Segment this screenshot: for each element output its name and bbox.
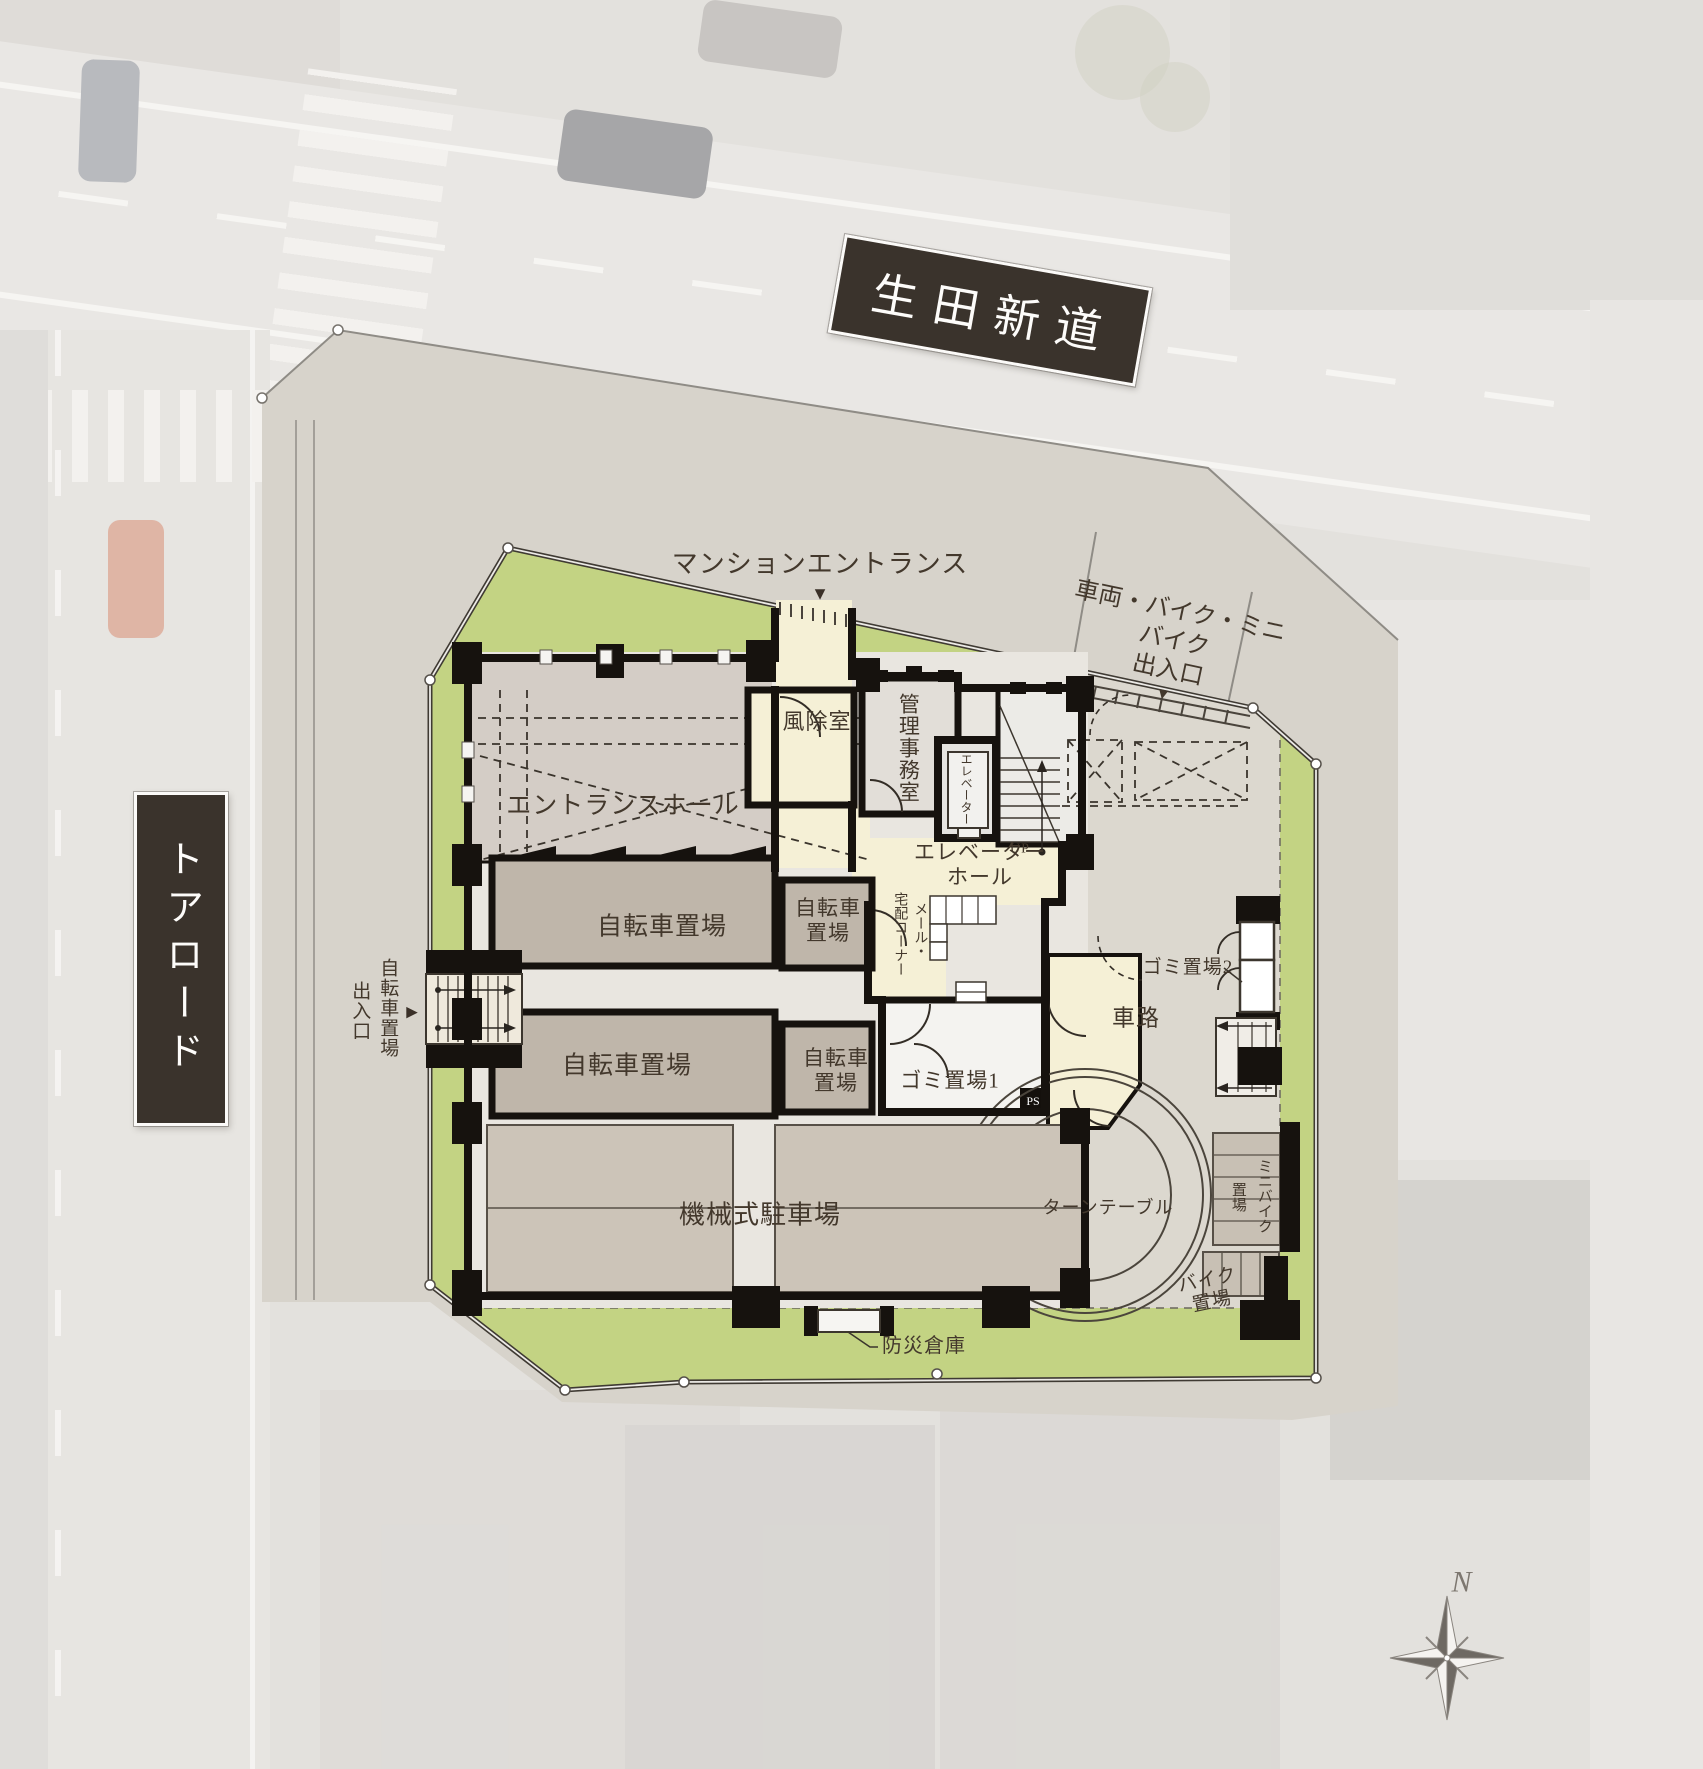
label-mail-line2: 宅配コーナー bbox=[891, 892, 908, 976]
site-plan-page: マンションエントランス ▼ 車両・バイク・ミニバイク 出入口 ▼ 自転車置場 出… bbox=[0, 0, 1703, 1769]
label-garbage-1: ゴミ置場1 bbox=[900, 1069, 1000, 1094]
label-ps: PS bbox=[1026, 1094, 1039, 1108]
entrance-marker-down-icon: ▼ bbox=[811, 584, 829, 605]
label-disaster-storage: 防災倉庫 bbox=[882, 1335, 966, 1359]
label-driveway: 車路 bbox=[1112, 1004, 1160, 1031]
label-elevator-hall: エレベーター ホール bbox=[914, 840, 1046, 890]
compass-north-label: N bbox=[1451, 1564, 1472, 1599]
label-mechanical-parking: 機械式駐車場 bbox=[679, 1201, 841, 1232]
label-bicycle-parking-4: 自転車置場 bbox=[802, 1046, 869, 1096]
windbreak-room bbox=[748, 690, 854, 805]
label-bicycle-entrance-line2: 出入口 bbox=[348, 981, 370, 1041]
label-management-office: 管理事務室 bbox=[896, 693, 921, 803]
elevator-hall-line1: エレベーター bbox=[914, 840, 1046, 865]
label-elevator: エレベーター bbox=[959, 753, 973, 825]
label-entrance-hall: エントランスホール bbox=[506, 791, 740, 821]
elevator-hall-line2: ホール bbox=[914, 865, 1046, 890]
label-bicycle-parking-1: 自転車置場 bbox=[597, 912, 727, 942]
label-turntable: ターンテーブル bbox=[1042, 1197, 1173, 1218]
label-bicycle-parking-3: 自転車置場 bbox=[562, 1051, 692, 1081]
bicycle-entrance-marker-right-icon: ▶ bbox=[406, 1003, 418, 1022]
road-sign-tor-text: トアロード bbox=[154, 839, 209, 1079]
label-bicycle-entrance-line1: 自転車置場 bbox=[376, 958, 398, 1058]
bike-ramp bbox=[1216, 1018, 1282, 1096]
road-sign-tor-road: トアロード bbox=[134, 792, 228, 1126]
label-mansion-entrance: マンションエントランス bbox=[672, 550, 968, 581]
label-minibike-line2: 置場 bbox=[1228, 1182, 1246, 1212]
label-bicycle-parking-2: 自転車置場 bbox=[794, 896, 861, 946]
label-minibike-line1: ミニバイク bbox=[1254, 1159, 1272, 1234]
compass-rose bbox=[1390, 1596, 1504, 1720]
label-mail-line1: メール・ bbox=[911, 902, 928, 958]
label-windbreak-room: 風除室 bbox=[782, 709, 851, 735]
label-garbage-2: ゴミ置場2 bbox=[1143, 957, 1234, 979]
